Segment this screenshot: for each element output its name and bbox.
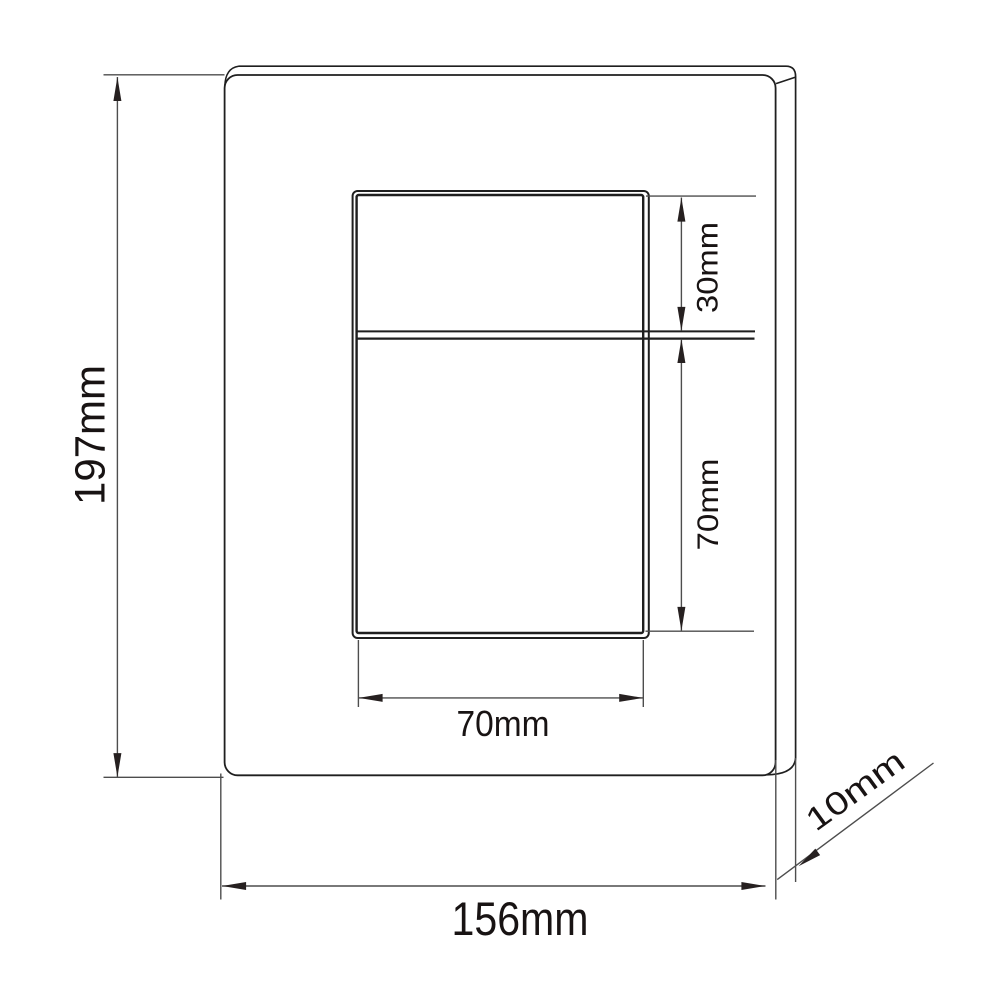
svg-text:156mm: 156mm [452, 892, 589, 945]
svg-text:70mm: 70mm [457, 703, 550, 744]
svg-text:70mm: 70mm [692, 459, 725, 551]
svg-text:30mm: 30mm [691, 222, 724, 313]
svg-text:197mm: 197mm [68, 365, 115, 505]
